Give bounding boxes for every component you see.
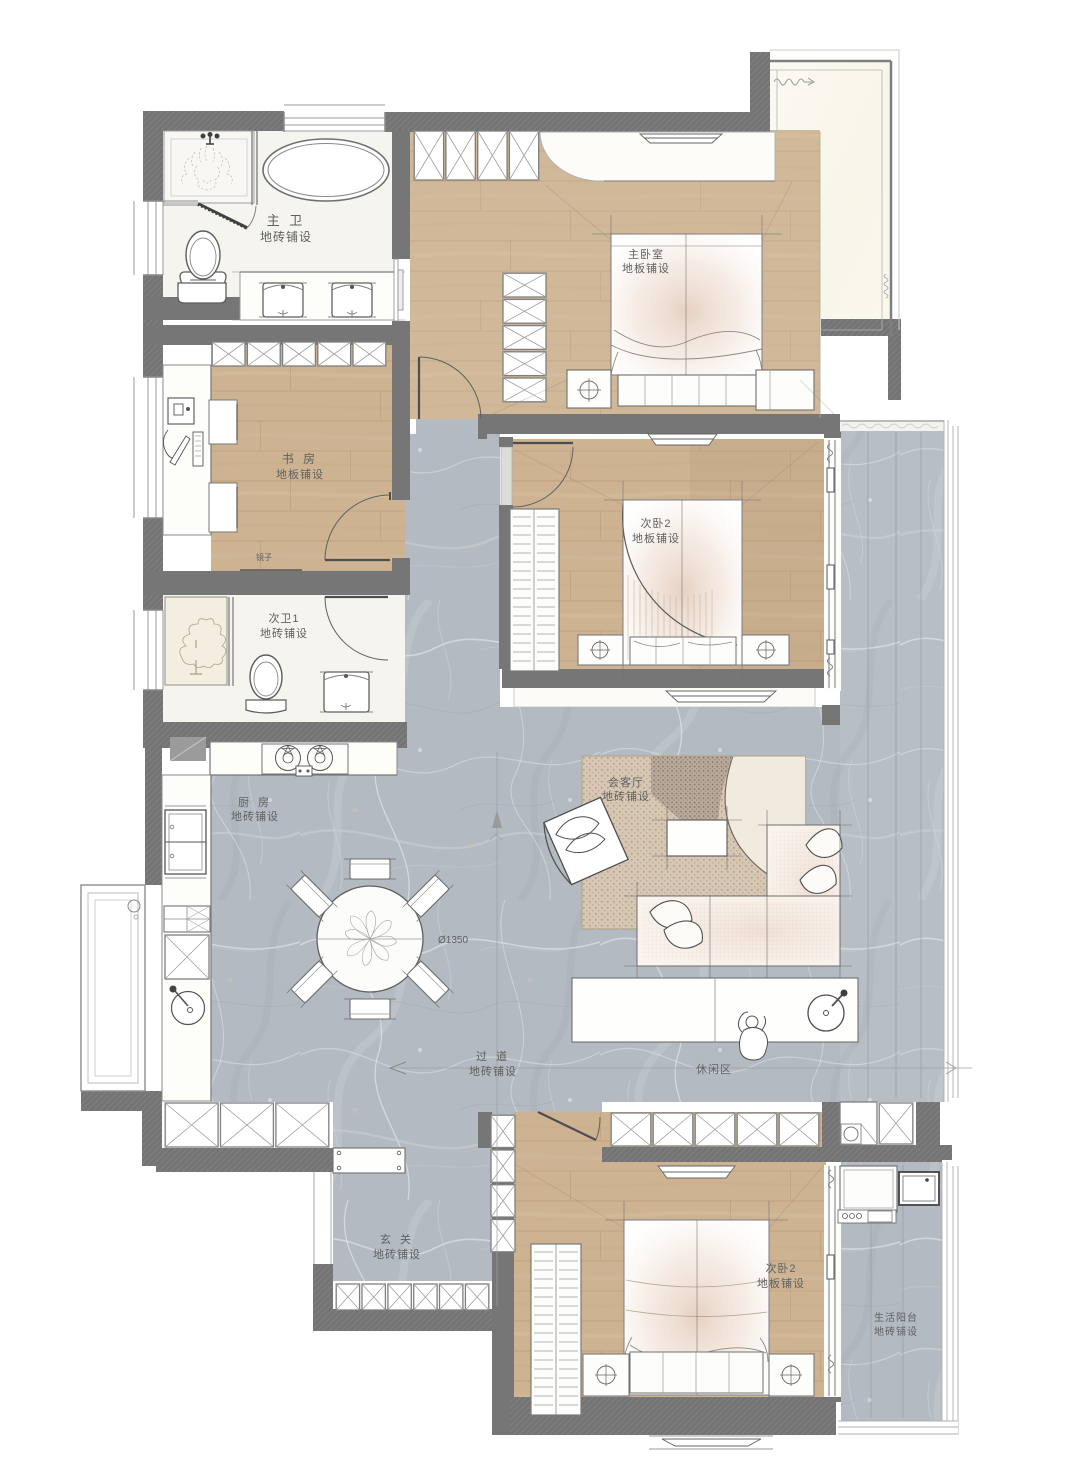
svg-text:次卫1: 次卫1 xyxy=(268,611,299,625)
svg-text:玄 关: 玄 关 xyxy=(380,1232,414,1246)
svg-text:厨 房: 厨 房 xyxy=(238,796,272,809)
svg-text:地砖铺设: 地砖铺设 xyxy=(602,789,650,803)
svg-text:书 房: 书 房 xyxy=(282,451,318,466)
svg-text:次卧2: 次卧2 xyxy=(765,1261,796,1275)
svg-text:地砖铺设: 地砖铺设 xyxy=(231,809,279,823)
svg-text:生活阳台: 生活阳台 xyxy=(874,1311,918,1324)
svg-text:会客厅: 会客厅 xyxy=(608,775,644,789)
svg-text:地砖铺设: 地砖铺设 xyxy=(373,1247,421,1261)
svg-text:主卧室: 主卧室 xyxy=(628,247,664,261)
svg-text:地板铺设: 地板铺设 xyxy=(757,1276,805,1290)
svg-text:地板铺设: 地板铺设 xyxy=(632,531,680,545)
svg-text:次卧2: 次卧2 xyxy=(640,516,671,530)
svg-text:主 卫: 主 卫 xyxy=(267,213,306,228)
svg-text:地板铺设: 地板铺设 xyxy=(276,467,324,481)
svg-text:地砖铺设: 地砖铺设 xyxy=(260,626,308,640)
svg-text:地砖铺设: 地砖铺设 xyxy=(469,1064,517,1078)
svg-text:Ø1350: Ø1350 xyxy=(438,935,468,946)
svg-text:地砖铺设: 地砖铺设 xyxy=(260,229,312,244)
svg-text:休闲区: 休闲区 xyxy=(696,1062,732,1076)
svg-text:地板铺设: 地板铺设 xyxy=(622,261,670,275)
svg-text:地砖铺设: 地砖铺设 xyxy=(874,1325,918,1338)
svg-text:镜子: 镜子 xyxy=(256,552,272,562)
svg-text:过 道: 过 道 xyxy=(476,1049,510,1063)
